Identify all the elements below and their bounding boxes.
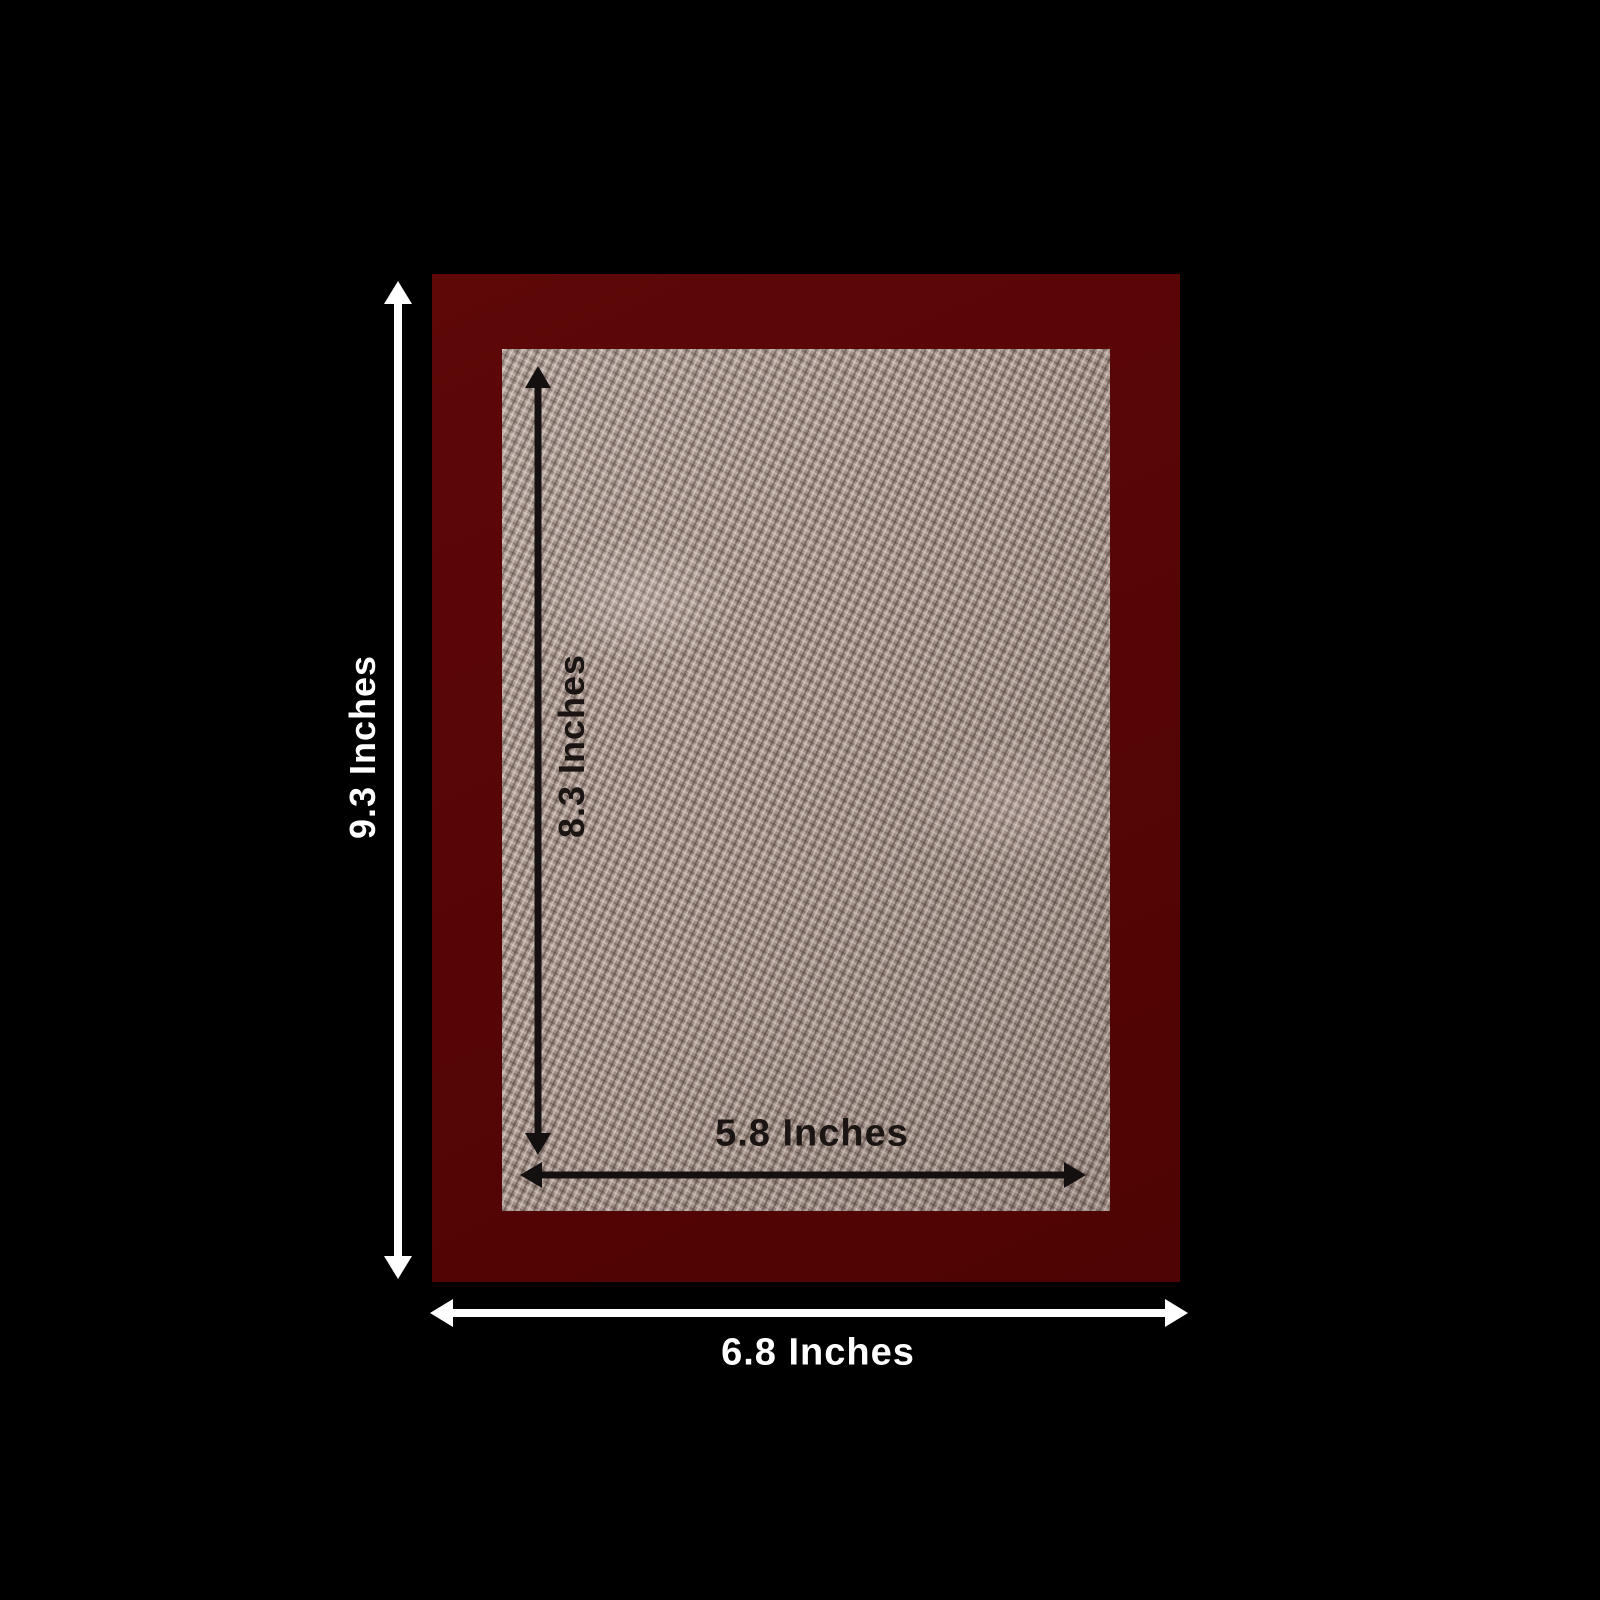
- arrow-head-down-icon: [384, 1256, 412, 1279]
- outer-height-arrow: [384, 281, 412, 1279]
- arrow-head-down-icon: [525, 1133, 551, 1155]
- inner-height-arrow: [524, 366, 552, 1155]
- outer-height-label: 9.3 Inches: [342, 655, 384, 839]
- inner-width-label: 5.8 Inches: [715, 1113, 909, 1156]
- inner-height-label: 8.3 Inches: [551, 654, 593, 838]
- outer-width-arrow: [430, 1299, 1188, 1327]
- fabric-panel: [502, 349, 1110, 1211]
- inner-width-arrow: [520, 1162, 1086, 1188]
- outer-width-label: 6.8 Inches: [721, 1332, 915, 1375]
- diagram-canvas: 9.3 Inches 8.3 Inches 5.8 Inches 6.8 Inc…: [0, 0, 1600, 1600]
- arrow-head-right-icon: [1064, 1162, 1086, 1188]
- arrow-head-right-icon: [1165, 1299, 1188, 1327]
